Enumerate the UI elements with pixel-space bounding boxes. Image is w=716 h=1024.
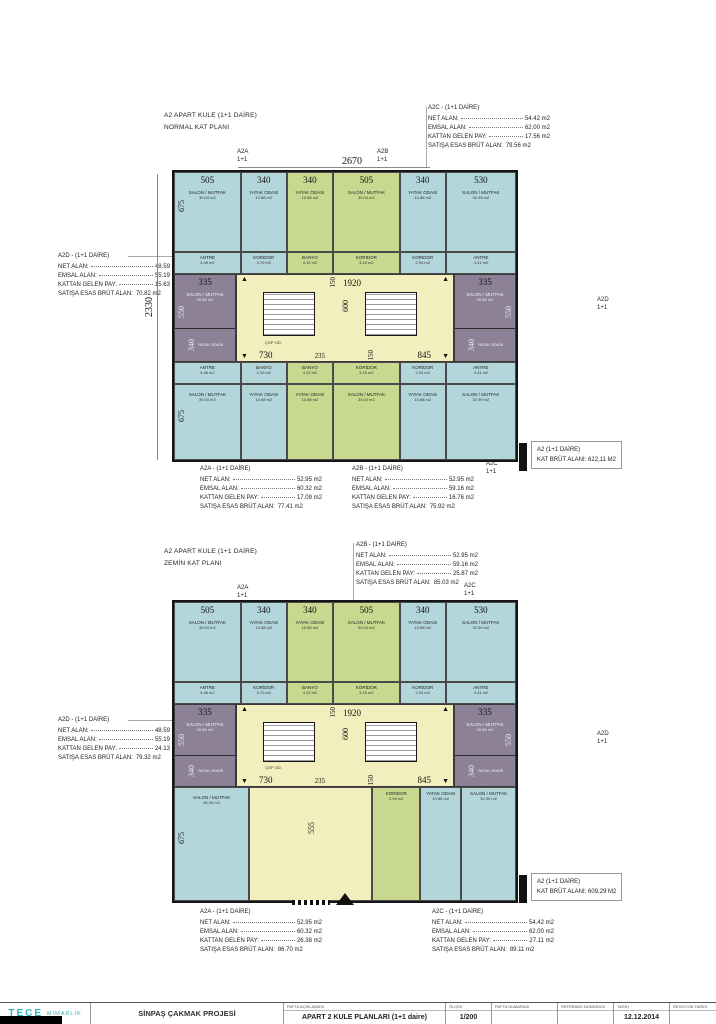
dimension-label: 505 bbox=[360, 605, 374, 615]
room-cell-yatak: 340 YATAK ODASI 10.88 m2 bbox=[400, 172, 446, 252]
dotted-leader bbox=[469, 127, 523, 128]
annotation-label: SATIŞA ESAS BRÜT ALAN: bbox=[356, 579, 431, 588]
annotation-label: SATIŞA ESAS BRÜT ALAN: bbox=[352, 503, 427, 512]
room-cell-koridor: KORİDOR3.70 m2 bbox=[241, 252, 287, 274]
cell-header: PAFTA AÇIKLAMASI bbox=[284, 1003, 445, 1011]
sheet-number-cell: PAFTA NUMARASI bbox=[491, 1003, 557, 1024]
room-cell-salon: SALON / MUTFAK 30.04 m2 675 bbox=[174, 787, 249, 901]
room-cell-salon: SALON / MUTFAK32.99 m2 bbox=[446, 384, 516, 460]
room-cell-antre: ANTRE4.48 m2 bbox=[174, 252, 241, 274]
dimension-label: 505 bbox=[201, 605, 215, 615]
unit-type: 1+1 bbox=[377, 156, 388, 164]
annotation-label: EMSAL ALAN: bbox=[352, 485, 391, 494]
room-cell-koridor: KORİDOR2.94 m2 bbox=[400, 252, 446, 274]
room-cell-yatak: YATAK ODASI10.88 m2 bbox=[400, 384, 446, 460]
room-name: ÇÖP OD. bbox=[265, 341, 282, 346]
plan2-title-line2: ZEMİN KAT PLANI bbox=[164, 558, 257, 570]
room-cell-yatak: 340 YATAK ODASI bbox=[175, 755, 235, 786]
annotation-value: 60.32 m2 bbox=[297, 485, 322, 494]
annotation-value: 26.38 m2 bbox=[297, 937, 322, 946]
dimension-label: 340 bbox=[467, 339, 476, 351]
unit-type: 1+1 bbox=[597, 304, 609, 312]
room-cell-koridor: KORİDOR3.70 m2 bbox=[241, 682, 287, 704]
room-cell-koridor: KORİDOR2.94 m2 bbox=[400, 362, 446, 384]
dimension-label: 550 bbox=[177, 306, 186, 318]
plan2-title: A2 APART KULE (1+1 DAİRE) ZEMİN KAT PLAN… bbox=[164, 546, 257, 569]
floor-area-summary-plan1: A2 (1+1 DAİRE) KAT BRÜT ALANI: 622,11 M2 bbox=[531, 441, 622, 469]
dimension-line bbox=[238, 167, 430, 168]
annotation-title: A2B - (1+1 DAİRE) bbox=[352, 465, 474, 474]
annotation-value: 17.09 m2 bbox=[297, 494, 322, 503]
dimension-label: 550 bbox=[177, 734, 186, 746]
dimension-label: 600 bbox=[341, 728, 350, 740]
unit-type: 1+1 bbox=[464, 590, 476, 598]
annotation-label: EMSAL ALAN: bbox=[356, 561, 395, 570]
revision-date-cell: REVİZYON TARİHİ bbox=[669, 1003, 716, 1024]
dimension-label: 675 bbox=[177, 832, 186, 844]
dimension-label: 340 bbox=[187, 765, 196, 777]
plan1-title-line1: A2 APART KULE (1+1 DAİRE) bbox=[164, 110, 257, 122]
direction-arrow-icon: ▼ bbox=[241, 353, 248, 360]
annotation-label: NET ALAN: bbox=[200, 476, 231, 485]
dimension-label: 845 bbox=[417, 775, 431, 785]
annotation-label: SATIŞA ESAS BRÜT ALAN: bbox=[58, 754, 133, 763]
annotation-plan1-a2d: A2D - (1+1 DAİRE) NET ALAN:48.59 m2 EMSA… bbox=[58, 252, 180, 299]
core-corridor: 150 1920 600 ÇÖP OD. 730 235 150 845 ▲ ▲ bbox=[236, 704, 454, 787]
cell-value: APART 2 KULE PLANLARI (1+1 daire) bbox=[284, 1011, 445, 1024]
room-area: 32.99 m2 bbox=[473, 196, 490, 201]
room-cell-salon: 505 SALON / MUTFAK 30.04 m2 bbox=[333, 172, 400, 252]
annotation-value: 16.76 m2 bbox=[449, 494, 474, 503]
annotation-label: SATIŞA ESAS BRÜT ALAN: bbox=[428, 142, 503, 151]
unit-code: A2D bbox=[597, 730, 609, 738]
annotation-value: 79.56 m2 bbox=[506, 142, 531, 151]
annotation-value: 85.03 m2 bbox=[434, 579, 459, 588]
summary-line: A2 (1+1 DAİRE) bbox=[537, 877, 616, 887]
room-cell-antre: ANTRE4.41 m2 bbox=[446, 252, 516, 274]
room-cell-a2d-right: 335 SALON / MUTFAK 20.86 m2 550 340 YATA… bbox=[454, 274, 516, 362]
direction-arrow-icon: ▼ bbox=[442, 778, 449, 785]
room-cell-koridor: KORİDOR3.15 m2 bbox=[333, 362, 400, 384]
unit-label-plan2-a2a: A2A 1+1 bbox=[237, 584, 248, 600]
staircase bbox=[365, 292, 417, 336]
room-area: 30.04 m2 bbox=[199, 196, 216, 201]
annotation-value: 52.95 m2 bbox=[297, 476, 322, 485]
annotation-value: 54.42 m2 bbox=[525, 115, 550, 124]
summary-line: KAT BRÜT ALANI: 609,29 M2 bbox=[537, 887, 616, 897]
annotation-label: NET ALAN: bbox=[58, 263, 89, 272]
wall-mark bbox=[519, 875, 527, 903]
unit-type: 1+1 bbox=[237, 156, 248, 164]
leader-line bbox=[426, 107, 427, 168]
dimension-label: 150 bbox=[367, 775, 375, 786]
project-name: SİNPAŞ ÇAKMAK PROJESİ bbox=[138, 1009, 235, 1018]
dimension-label: 335 bbox=[478, 707, 492, 717]
annotation-title: A2C - (1+1 DAİRE) bbox=[432, 908, 554, 917]
annotation-value: 60.32 m2 bbox=[297, 928, 322, 937]
dimension-label: 340 bbox=[416, 175, 430, 185]
annotation-label: KATTAN GELEN PAY: bbox=[432, 937, 491, 946]
floor-area-summary-plan2: A2 (1+1 DAİRE) KAT BRÜT ALANI: 609,29 M2 bbox=[531, 873, 622, 901]
room-cell-yatak: 340 YATAK ODASI bbox=[455, 328, 515, 361]
dimension-label: 675 bbox=[177, 410, 186, 422]
unit-label-plan1-a2a: A2A 1+1 bbox=[237, 148, 248, 164]
entrance-hatch bbox=[292, 900, 330, 905]
dimension-label: 555 bbox=[307, 822, 316, 834]
room-cell-salon: 530 SALON / MUTFAK 32.99 m2 bbox=[446, 602, 516, 682]
unit-code: A2D bbox=[597, 296, 609, 304]
dimension-label: 340 bbox=[416, 605, 430, 615]
building-plan-normal-kat: 505 SALON / MUTFAK 30.04 m2 675 340 YATA… bbox=[172, 170, 518, 462]
cell-header: PAFTA NUMARASI bbox=[492, 1003, 557, 1011]
annotation-value: 62.00 m2 bbox=[525, 124, 550, 133]
unit-label-plan1-a2d: A2D 1+1 bbox=[597, 296, 609, 312]
annotation-label: SATIŞA ESAS BRÜT ALAN: bbox=[58, 290, 133, 299]
room-area: 10.88 m2 bbox=[302, 196, 319, 201]
dimension-label: 845 bbox=[417, 350, 431, 360]
dotted-leader bbox=[91, 266, 153, 267]
annotation-label: KATTAN GELEN PAY: bbox=[200, 937, 259, 946]
annotation-label: EMSAL ALAN: bbox=[200, 928, 239, 937]
sheet-description-cell: PAFTA AÇIKLAMASI APART 2 KULE PLANLARI (… bbox=[283, 1003, 445, 1024]
annotation-label: KATTAN GELEN PAY: bbox=[428, 133, 487, 142]
dimension-label: 730 bbox=[259, 775, 273, 785]
direction-arrow-icon: ▼ bbox=[241, 778, 248, 785]
drawing-sheet: A2 APART KULE (1+1 DAİRE) NORMAL KAT PLA… bbox=[0, 0, 716, 1024]
room-cell-koridor: KORİDOR2.94 m2 bbox=[400, 682, 446, 704]
direction-arrow-icon: ▲ bbox=[442, 276, 449, 283]
annotation-title: A2A - (1+1 DAİRE) bbox=[200, 908, 322, 917]
plan2-title-line1: A2 APART KULE (1+1 DAİRE) bbox=[164, 546, 257, 558]
annotation-value: 59.16 m2 bbox=[449, 485, 474, 494]
title-block: TECE MİMARLIK SİNPAŞ ÇAKMAK PROJESİ PAFT… bbox=[0, 1002, 716, 1024]
cell-header: REFERANS NUMARASI bbox=[558, 1003, 613, 1011]
room-cell-antre: ANTRE4.41 m2 bbox=[446, 362, 516, 384]
annotation-title: A2A - (1+1 DAİRE) bbox=[200, 465, 322, 474]
dimension-label: 235 bbox=[315, 352, 326, 360]
reference-number-cell: REFERANS NUMARASI bbox=[557, 1003, 613, 1024]
annotation-label: KATTAN GELEN PAY: bbox=[352, 494, 411, 503]
annotation-value: 52.95 m2 bbox=[453, 552, 478, 561]
annotation-label: NET ALAN: bbox=[428, 115, 459, 124]
dimension-label: 600 bbox=[341, 300, 350, 312]
unit-type: 1+1 bbox=[237, 592, 248, 600]
room-cell-a2d-left: 335 SALON / MUTFAK 20.86 m2 550 340 YATA… bbox=[174, 704, 236, 787]
room-area: 20.86 m2 bbox=[197, 298, 214, 303]
annotation-value: 52.95 m2 bbox=[297, 919, 322, 928]
room-cell-yatak: YATAK ODASI 10.88 m2 bbox=[420, 787, 461, 901]
unit-code: A2C bbox=[464, 582, 476, 590]
annotation-label: KATTAN GELEN PAY: bbox=[58, 745, 117, 754]
room-cell-yatak: 340 YATAK ODASI 10.88 m2 bbox=[287, 602, 333, 682]
direction-arrow-icon: ▲ bbox=[442, 706, 449, 713]
cell-header: ÖLÇEK bbox=[446, 1003, 491, 1011]
core-corridor: 150 1920 600 ÇÖP OD. 730 235 150 845 ▲ ▲ bbox=[236, 274, 454, 362]
annotation-label: KATTAN GELEN PAY: bbox=[356, 570, 415, 579]
annotation-label: SATIŞA ESAS BRÜT ALAN: bbox=[200, 946, 275, 955]
cell-value: 12.12.2014 bbox=[614, 1011, 669, 1024]
unit-type: 1+1 bbox=[486, 468, 498, 476]
annotation-label: EMSAL ALAN: bbox=[432, 928, 471, 937]
annotation-plan2-a2d: A2D - (1+1 DAİRE) NET ALAN:48.59 m2 EMSA… bbox=[58, 716, 180, 763]
room-cell-koridor: KORİDOR3.15 m2 bbox=[333, 682, 400, 704]
direction-arrow-icon: ▲ bbox=[241, 276, 248, 283]
dimension-label: 150 bbox=[367, 350, 375, 361]
annotation-plan1-a2c: A2C - (1+1 DAİRE) NET ALAN:54.42 m2 EMSA… bbox=[428, 104, 550, 151]
room-cell-salon: SALON / MUTFAK30.04 m2 bbox=[333, 384, 400, 460]
dimension-label: 505 bbox=[360, 175, 374, 185]
annotation-label: SATIŞA ESAS BRÜT ALAN: bbox=[432, 946, 507, 955]
wall-mark bbox=[519, 443, 527, 471]
annotation-label: EMSAL ALAN: bbox=[200, 485, 239, 494]
annotation-value: 25.87 m2 bbox=[453, 570, 478, 579]
annotation-label: SATIŞA ESAS BRÜT ALAN: bbox=[200, 503, 275, 512]
room-cell-salon: 505 SALON / MUTFAK 30.04 m2 bbox=[174, 602, 241, 682]
annotation-label: EMSAL ALAN: bbox=[58, 736, 97, 745]
dotted-leader bbox=[119, 284, 153, 285]
annotation-value: 59.16 m2 bbox=[453, 561, 478, 570]
leader-line bbox=[128, 256, 172, 257]
dimension-label: 335 bbox=[198, 277, 212, 287]
room-cell-yatak: YATAK ODASI10.88 m2 bbox=[287, 384, 333, 460]
annotation-plan1-a2a: A2A - (1+1 DAİRE) NET ALAN:52.95 m2 EMSA… bbox=[200, 465, 322, 512]
leader-line bbox=[353, 543, 354, 600]
dimension-label: 335 bbox=[478, 277, 492, 287]
room-cell-koridor: KORİDOR3.15 m2 bbox=[333, 252, 400, 274]
summary-line: A2 (1+1 DAİRE) bbox=[537, 445, 616, 455]
cell-value: 1/200 bbox=[446, 1011, 491, 1024]
direction-arrow-icon: ▲ bbox=[241, 706, 248, 713]
room-cell-yatak: 340 YATAK ODASI bbox=[455, 755, 515, 786]
room-name: ÇÖP OD. bbox=[265, 766, 282, 771]
annotation-plan2-a2a: A2A - (1+1 DAİRE) NET ALAN:52.95 m2 EMSA… bbox=[200, 908, 322, 955]
staircase bbox=[263, 722, 315, 762]
annotation-label: EMSAL ALAN: bbox=[58, 272, 97, 281]
dimension-label: 235 bbox=[315, 777, 326, 785]
cell-value bbox=[492, 1011, 557, 1024]
annotation-title: A2C - (1+1 DAİRE) bbox=[428, 104, 550, 113]
dimension-label: 550 bbox=[504, 734, 513, 746]
cell-header: TARİH bbox=[614, 1003, 669, 1011]
staircase bbox=[365, 722, 417, 762]
unit-label-plan2-a2c: A2C 1+1 bbox=[464, 582, 476, 598]
room-cell-salon: 530 SALON / MUTFAK 32.99 m2 bbox=[446, 172, 516, 252]
dimension-label: 1920 bbox=[343, 708, 361, 718]
annotation-label: NET ALAN: bbox=[58, 727, 89, 736]
dimension-overall-top: 2670 bbox=[340, 156, 364, 167]
dotted-leader bbox=[99, 275, 153, 276]
dimension-label: 530 bbox=[474, 175, 488, 185]
annotation-title: A2B - (1+1 DAİRE) bbox=[356, 541, 478, 550]
unit-label-plan1-a2b: A2B 1+1 bbox=[377, 148, 388, 164]
room-cell-salon: 505 SALON / MUTFAK 30.04 m2 675 bbox=[174, 172, 241, 252]
room-cell-salon: SALON / MUTFAK 30.04 m2 675 bbox=[174, 384, 241, 460]
annotation-label: NET ALAN: bbox=[356, 552, 387, 561]
room-area: 10.88 m2 bbox=[414, 196, 431, 201]
room-cell-yatak: 340 YATAK ODASI 10.88 m2 bbox=[241, 172, 287, 252]
annotation-label: EMSAL ALAN: bbox=[428, 124, 467, 133]
room-cell-antre: ANTRE4.48 m2 bbox=[174, 682, 241, 704]
dimension-overall-left: 2330 bbox=[144, 295, 155, 319]
cell-header: REVİZYON TARİHİ bbox=[670, 1003, 716, 1011]
annotation-value: 62.00 m2 bbox=[529, 928, 554, 937]
room-area: 30.04 m2 bbox=[358, 196, 375, 201]
dimension-label: 150 bbox=[329, 277, 337, 288]
room-cell-yatak: 340 YATAK ODASI 10.88 m2 bbox=[400, 602, 446, 682]
dimension-label: 340 bbox=[257, 605, 271, 615]
summary-line: KAT BRÜT ALANI: 622,11 M2 bbox=[537, 455, 616, 465]
dimension-label: 340 bbox=[257, 175, 271, 185]
dotted-leader bbox=[461, 118, 523, 119]
annotation-value: 17.56 m2 bbox=[525, 133, 550, 142]
unit-code: A2A bbox=[237, 148, 248, 156]
annotation-label: KATTAN GELEN PAY: bbox=[58, 281, 117, 290]
entrance-arrow-icon bbox=[336, 893, 354, 905]
annotation-plan2-a2b: A2B - (1+1 DAİRE) NET ALAN:52.95 m2 EMSA… bbox=[356, 541, 478, 588]
dimension-line bbox=[157, 174, 158, 460]
annotation-label: NET ALAN: bbox=[432, 919, 463, 928]
project-name-cell: SİNPAŞ ÇAKMAK PROJESİ bbox=[90, 1003, 283, 1024]
annotation-label: NET ALAN: bbox=[200, 919, 231, 928]
room-cell-yatak: YATAK ODASI10.88 m2 bbox=[241, 384, 287, 460]
annotation-value: 52.95 m2 bbox=[449, 476, 474, 485]
unit-label-plan1-a2c: A2C 1+1 bbox=[486, 460, 498, 476]
unit-code: A2B bbox=[377, 148, 388, 156]
date-cell: TARİH 12.12.2014 bbox=[613, 1003, 669, 1024]
dimension-label: 1920 bbox=[343, 278, 361, 288]
room-area: 10.88 m2 bbox=[255, 196, 272, 201]
room-cell-banyo: BANYO4.10 m2 bbox=[287, 362, 333, 384]
dotted-leader bbox=[489, 136, 523, 137]
dimension-label: 530 bbox=[474, 605, 488, 615]
annotation-value: 89.11 m2 bbox=[510, 946, 535, 955]
unit-label-plan2-a2d: A2D 1+1 bbox=[597, 730, 609, 746]
room-cell-salon: SALON / MUTFAK 32.99 m2 bbox=[461, 787, 516, 901]
room-cell-koridor: KORİDOR 2.94 m2 bbox=[372, 787, 420, 901]
unit-type: 1+1 bbox=[597, 738, 609, 746]
room-cell-yatak: 340 YATAK ODASI bbox=[175, 328, 235, 361]
annotation-label: KATTAN GELEN PAY: bbox=[200, 494, 259, 503]
room-cell-yatak: 340 YATAK ODASI 10.88 m2 bbox=[241, 602, 287, 682]
dimension-label: 675 bbox=[177, 200, 186, 212]
dimension-label: 340 bbox=[303, 605, 317, 615]
direction-arrow-icon: ▼ bbox=[442, 353, 449, 360]
room-cell-banyo: BANYO4.10 m2 bbox=[287, 252, 333, 274]
annotation-plan2-a2c: A2C - (1+1 DAİRE) NET ALAN:54.42 m2 EMSA… bbox=[432, 908, 554, 955]
entrance-lobby: 555 bbox=[249, 787, 372, 901]
room-cell-antre: ANTRE4.41 m2 bbox=[446, 682, 516, 704]
dimension-label: 340 bbox=[187, 339, 196, 351]
leader-line bbox=[128, 720, 172, 721]
dimension-label: 730 bbox=[259, 350, 273, 360]
dimension-label: 340 bbox=[467, 765, 476, 777]
room-cell-banyo: BANYO4.10 m2 bbox=[241, 362, 287, 384]
cell-value bbox=[670, 1011, 716, 1024]
scale-cell: ÖLÇEK 1/200 bbox=[445, 1003, 491, 1024]
annotation-value: 79.32 m2 bbox=[136, 754, 161, 763]
plan1-title-line2: NORMAL KAT PLANI bbox=[164, 122, 257, 134]
room-cell-banyo: BANYO4.10 m2 bbox=[287, 682, 333, 704]
room-cell-a2d-left: 335 SALON / MUTFAK 20.86 m2 550 340 YATA… bbox=[174, 274, 236, 362]
annotation-value: 54.42 m2 bbox=[529, 919, 554, 928]
room-cell-yatak: 340 YATAK ODASI 10.88 m2 bbox=[287, 172, 333, 252]
dimension-label: 505 bbox=[201, 175, 215, 185]
annotation-plan1-a2b: A2B - (1+1 DAİRE) NET ALAN:52.95 m2 EMSA… bbox=[352, 465, 474, 512]
building-entrance bbox=[292, 893, 354, 905]
room-cell-salon: 505 SALON / MUTFAK 30.04 m2 bbox=[333, 602, 400, 682]
room-cell-antre: ANTRE4.48 m2 bbox=[174, 362, 241, 384]
room-area: 20.86 m2 bbox=[477, 298, 494, 303]
dimension-label: 340 bbox=[303, 175, 317, 185]
annotation-value: 27.11 m2 bbox=[529, 937, 554, 946]
annotation-value: 75.92 m2 bbox=[430, 503, 455, 512]
unit-code: A2A bbox=[237, 584, 248, 592]
dimension-label: 150 bbox=[329, 707, 337, 718]
dimension-label: 550 bbox=[504, 306, 513, 318]
annotation-value: 77.41 m2 bbox=[278, 503, 303, 512]
annotation-label: NET ALAN: bbox=[352, 476, 383, 485]
room-cell-a2d-right: 335 SALON / MUTFAK 20.86 m2 550 340 YATA… bbox=[454, 704, 516, 787]
building-plan-zemin-kat: 505 SALON / MUTFAK 30.04 m2 340 YATAK OD… bbox=[172, 600, 518, 903]
staircase bbox=[263, 292, 315, 336]
plan1-title: A2 APART KULE (1+1 DAİRE) NORMAL KAT PLA… bbox=[164, 110, 257, 133]
corner-black-bar bbox=[0, 1016, 62, 1024]
dimension-label: 335 bbox=[198, 707, 212, 717]
annotation-value: 86.70 m2 bbox=[278, 946, 303, 955]
cell-value bbox=[558, 1011, 613, 1024]
